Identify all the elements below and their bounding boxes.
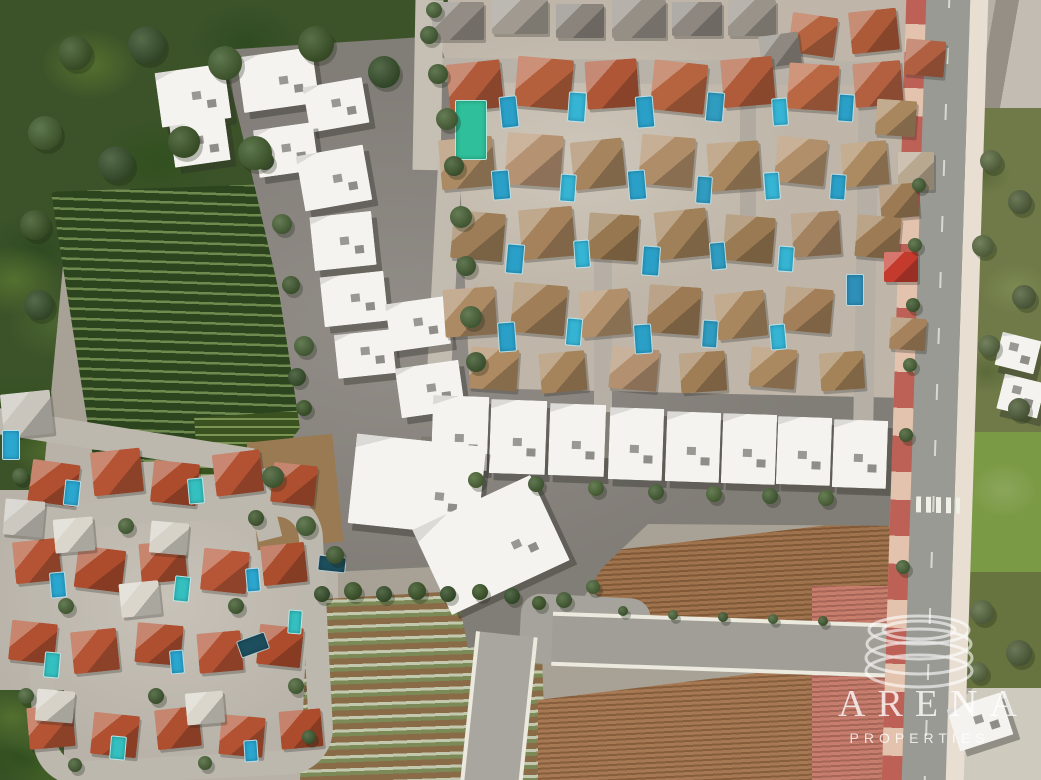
villa-roof	[706, 140, 761, 192]
villa-roof	[720, 56, 776, 108]
tree	[272, 214, 292, 234]
swimming-pool	[245, 567, 261, 592]
villa-roof	[672, 2, 722, 36]
tree	[68, 758, 82, 772]
villa-roof	[875, 99, 917, 138]
tree	[282, 276, 300, 294]
villa-roof	[3, 498, 46, 537]
villa-roof	[774, 136, 829, 187]
tree	[896, 560, 910, 574]
tree	[586, 580, 600, 594]
swimming-pool	[498, 95, 519, 129]
tree	[238, 136, 272, 170]
white-villa-building	[721, 413, 777, 485]
villa-roof	[786, 62, 839, 111]
swimming-pool	[2, 430, 20, 460]
tree	[24, 290, 54, 320]
villa-roof	[728, 0, 776, 36]
tree	[460, 306, 482, 328]
tree	[706, 486, 722, 502]
tree	[248, 510, 264, 526]
tree	[262, 466, 284, 488]
villa-roof	[884, 252, 918, 282]
white-villa-building	[489, 399, 548, 475]
swimming-pool	[763, 171, 781, 200]
villa-roof	[584, 58, 639, 110]
swimming-pool	[497, 321, 517, 352]
swimming-pool	[701, 319, 719, 348]
swimming-pool	[243, 740, 259, 763]
swimming-pool	[567, 91, 587, 122]
villa-roof	[278, 708, 323, 750]
tree	[1008, 398, 1030, 420]
tree	[762, 488, 778, 504]
villa-roof	[722, 214, 776, 264]
swimming-pool	[635, 95, 656, 128]
tree	[556, 592, 572, 608]
crosswalk	[916, 496, 960, 513]
swimming-pool	[505, 243, 526, 274]
swimming-pool	[173, 575, 192, 603]
tree	[899, 428, 913, 442]
tree	[118, 518, 134, 534]
tree	[426, 2, 442, 18]
tree	[908, 238, 922, 252]
tree	[298, 26, 334, 62]
tree	[408, 582, 426, 600]
villa-roof	[638, 134, 696, 189]
tree	[618, 606, 628, 616]
villa-roof	[679, 350, 728, 393]
villa-roof	[819, 351, 866, 392]
tree	[440, 586, 456, 602]
white-villa-building	[548, 403, 606, 477]
white-villa-building	[385, 296, 451, 352]
white-villa-building	[608, 407, 664, 481]
villa-roof	[218, 714, 265, 758]
tree	[58, 598, 74, 614]
tree	[296, 400, 312, 416]
villa-roof	[848, 8, 900, 55]
tree	[288, 678, 304, 694]
tree	[1008, 190, 1032, 214]
villa-roof	[654, 207, 711, 260]
villa-roof	[714, 290, 769, 341]
swimming-pool	[565, 317, 583, 346]
swimming-pool	[573, 239, 591, 268]
tree	[818, 490, 834, 506]
swimming-pool	[455, 100, 487, 160]
tree	[718, 612, 728, 622]
tree	[148, 688, 164, 704]
tree	[198, 756, 212, 770]
tree	[436, 108, 458, 130]
villa-roof	[185, 690, 226, 725]
villa-roof	[840, 140, 890, 188]
swimming-pool	[559, 173, 577, 202]
tree	[818, 616, 828, 626]
tree	[978, 335, 1000, 357]
east-road	[551, 612, 911, 678]
tree	[444, 156, 464, 176]
swimming-pool	[829, 173, 847, 200]
tree	[58, 36, 92, 70]
tree	[972, 235, 994, 257]
tree	[18, 688, 34, 704]
villa-roof	[612, 0, 666, 38]
tree	[168, 126, 200, 158]
villa-roof	[748, 346, 797, 390]
tree	[368, 56, 400, 88]
tree	[468, 472, 484, 488]
villa-roof	[90, 448, 144, 497]
white-villa-building	[320, 271, 389, 327]
tree	[12, 468, 28, 484]
tree	[296, 516, 316, 536]
white-villa-building	[334, 329, 396, 379]
tree	[294, 336, 314, 356]
swimming-pool	[49, 571, 67, 598]
villa-roof	[586, 212, 639, 261]
swimming-pool	[641, 245, 661, 276]
tree	[968, 662, 988, 682]
tree	[668, 610, 678, 620]
tree	[466, 352, 486, 372]
swimming-pool	[769, 323, 787, 350]
villa-roof	[510, 282, 568, 337]
tree	[980, 150, 1002, 172]
tree	[326, 546, 344, 564]
tree	[128, 26, 166, 64]
villa-roof	[556, 4, 604, 38]
tree	[20, 210, 50, 240]
swimming-pool	[837, 93, 855, 122]
tree	[288, 368, 306, 386]
villa-roof	[538, 350, 587, 394]
villa-roof	[646, 284, 701, 336]
villa-roof	[196, 630, 243, 674]
villa-roof	[504, 132, 563, 188]
villa-roof	[53, 516, 96, 553]
villa-roof	[889, 317, 927, 351]
tree	[228, 598, 244, 614]
tree	[472, 584, 488, 600]
tree	[208, 46, 242, 80]
swimming-pool	[627, 169, 648, 200]
villa-roof	[782, 286, 834, 334]
villa-roof	[118, 580, 161, 618]
tree	[648, 484, 664, 500]
swimming-pool	[287, 610, 303, 635]
villa-roof	[212, 449, 265, 497]
tree	[1006, 640, 1032, 666]
swimming-pool	[771, 97, 789, 126]
villa-roof	[35, 688, 76, 723]
villa-roof	[514, 56, 574, 111]
tree	[970, 600, 994, 624]
villa-roof	[518, 206, 576, 261]
swimming-pool	[491, 169, 512, 200]
swimming-pool	[705, 91, 726, 122]
tree	[450, 206, 472, 228]
tree	[302, 730, 316, 744]
villa-roof	[70, 628, 120, 675]
white-villa-building	[776, 416, 832, 486]
swimming-pool	[187, 477, 205, 504]
tree	[98, 146, 134, 182]
tree	[1012, 285, 1036, 309]
aerial-development-photo: ARENA PROPERTIES	[0, 0, 1041, 780]
tree	[456, 256, 476, 276]
swimming-pool	[169, 649, 185, 674]
villa-roof	[570, 137, 627, 190]
swimming-pool	[695, 175, 713, 204]
tree	[912, 178, 926, 192]
white-villa-building	[665, 411, 721, 483]
tree	[903, 358, 917, 372]
tree	[28, 116, 62, 150]
swimming-pool	[633, 323, 653, 354]
villa-roof	[791, 210, 842, 257]
swimming-pool	[777, 245, 795, 272]
tree	[528, 476, 544, 492]
tree	[768, 614, 778, 624]
swimming-pool	[63, 479, 82, 507]
swimming-pool	[43, 651, 61, 678]
tree	[588, 480, 604, 496]
tree	[344, 582, 362, 600]
tree	[376, 586, 392, 602]
villa-roof	[650, 59, 709, 114]
swimming-pool	[709, 241, 727, 270]
villa-roof	[492, 0, 548, 34]
tree	[428, 64, 448, 84]
white-villa-building	[309, 211, 376, 271]
tree	[314, 586, 330, 602]
villa-roof	[578, 288, 632, 338]
tree	[420, 26, 438, 44]
white-villa-building	[296, 145, 373, 212]
villa-roof	[904, 38, 947, 77]
swimming-pool	[846, 274, 864, 306]
tree	[906, 298, 920, 312]
villa-roof	[200, 548, 250, 595]
tree	[532, 596, 546, 610]
tree	[504, 588, 520, 604]
white-villa-building	[832, 419, 888, 489]
villa-roof	[260, 542, 308, 586]
swimming-pool	[109, 735, 127, 760]
villa-roof	[149, 520, 190, 555]
